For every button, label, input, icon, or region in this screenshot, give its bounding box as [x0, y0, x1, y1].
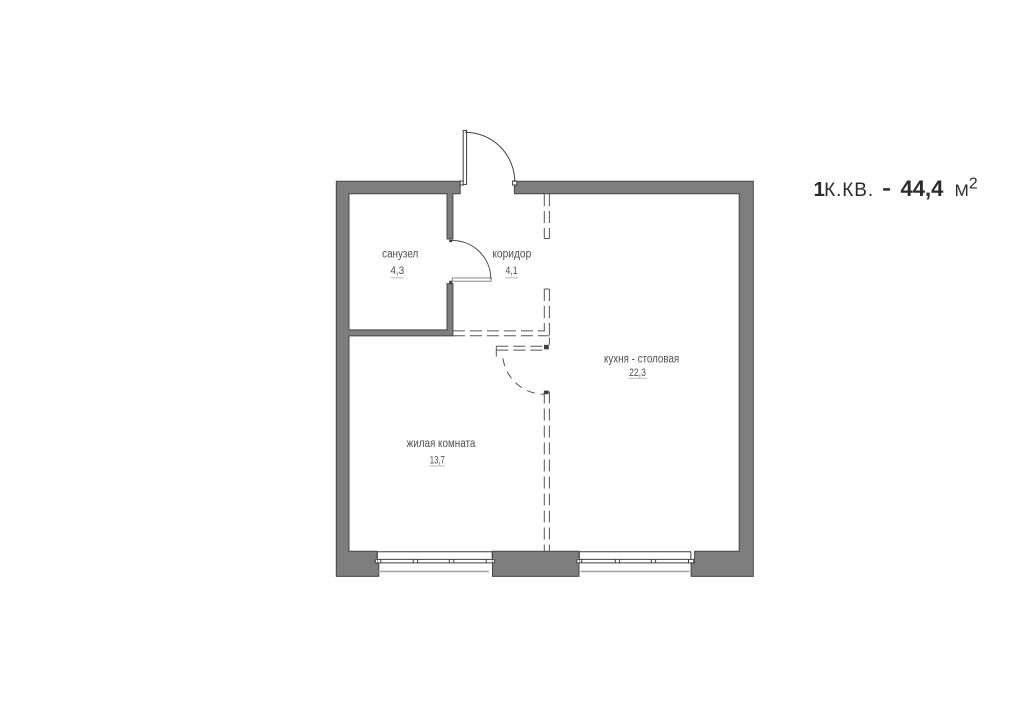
svg-text:М: М [955, 181, 969, 200]
svg-text:К.КВ.: К.КВ. [824, 180, 873, 201]
svg-text:2: 2 [969, 176, 978, 193]
svg-text:44,4: 44,4 [901, 176, 945, 201]
svg-text:санузел: санузел [382, 249, 418, 261]
svg-text:13,7: 13,7 [430, 455, 445, 467]
svg-text:22,3: 22,3 [629, 367, 646, 379]
svg-text:кухня - столовая: кухня - столовая [604, 354, 679, 366]
svg-text:4,3: 4,3 [390, 265, 404, 277]
svg-text:4,1: 4,1 [505, 265, 517, 277]
svg-text:коридор: коридор [492, 249, 531, 261]
svg-text:жилая комната: жилая комната [407, 438, 476, 450]
